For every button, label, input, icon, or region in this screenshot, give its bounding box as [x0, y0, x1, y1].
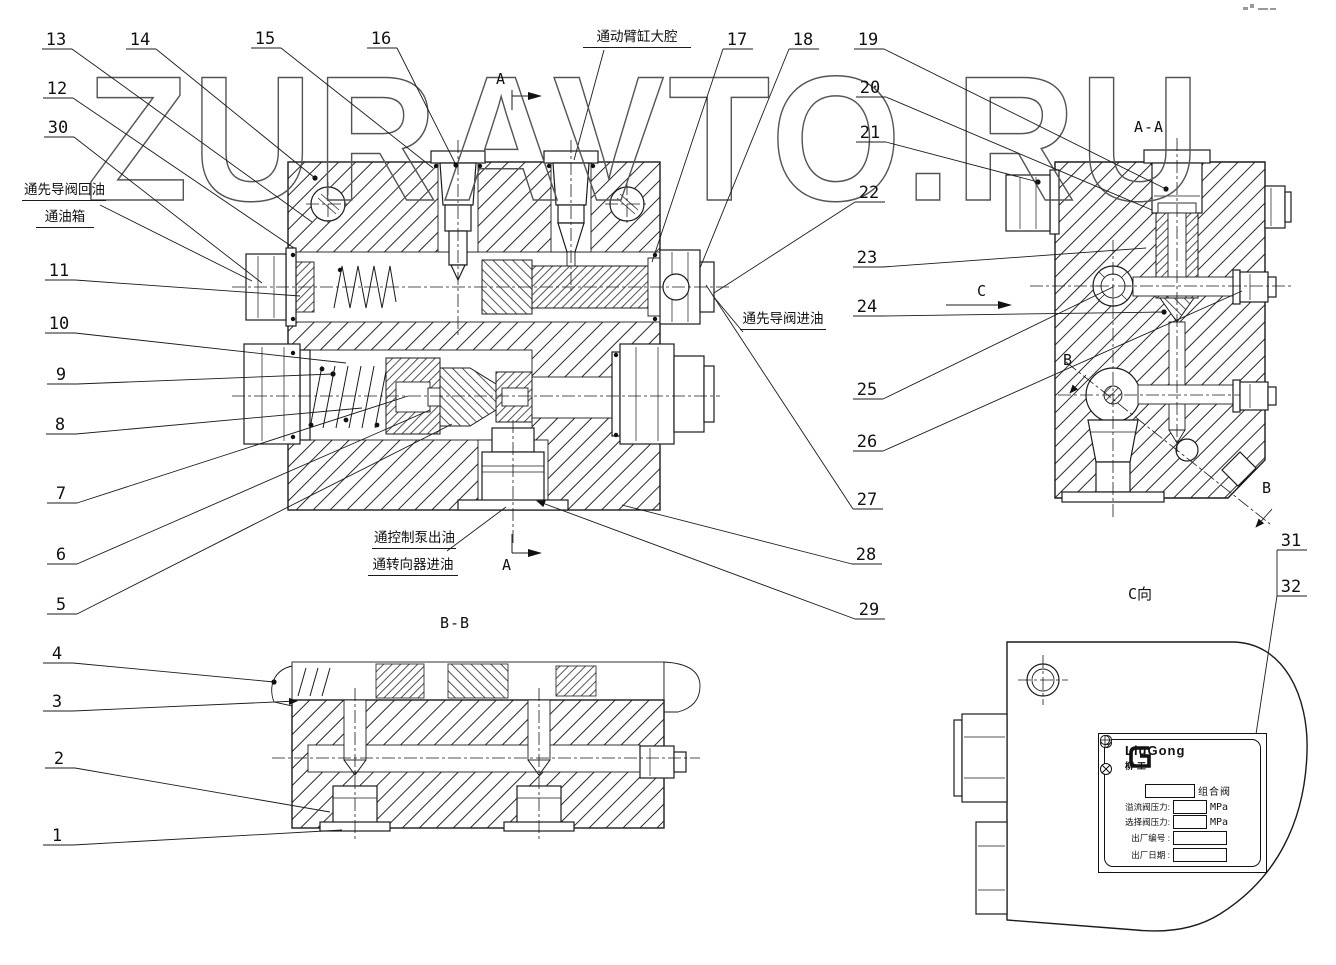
annotation-pilot-inlet: 通先导阀进油: [740, 312, 826, 330]
caption-section-aa: A-A: [1134, 118, 1164, 136]
part-number-1: 1: [52, 826, 62, 846]
caption-view-c: C向: [1128, 583, 1152, 604]
leader-line-3: [73, 701, 297, 711]
annotation-pump-out-line2: 通转向器进油: [368, 558, 458, 576]
hex-nut-lower-right: [612, 344, 714, 444]
marker-a-bottom: A: [502, 556, 511, 574]
c-view-left-plug-lower: [976, 822, 1007, 914]
liugong-logo-icon: [1125, 743, 1153, 771]
part-number-8: 8: [55, 415, 65, 435]
part-number-12: 12: [47, 79, 67, 99]
field-label: 出厂编号 :: [1117, 832, 1170, 844]
part-number-27: 27: [857, 490, 877, 510]
part-number-10: 10: [49, 314, 69, 334]
part-number-5: 5: [56, 595, 66, 615]
part-number-16: 16: [371, 29, 391, 49]
part-number-21: 21: [860, 123, 880, 143]
annotation-pilot-return-line2: 通油箱: [36, 210, 94, 228]
circle-cross-mark: [1099, 762, 1113, 776]
field-label: 出厂日期 :: [1117, 849, 1170, 861]
marker-a-top: A: [496, 70, 505, 88]
nameplate-relief-pressure-row: 溢流阀压力: MPa: [1117, 800, 1228, 814]
leader-line-1: [73, 830, 342, 845]
blank-field: [1173, 815, 1207, 829]
part-number-3: 3: [52, 692, 62, 712]
field-label: 选择阀压力:: [1117, 816, 1170, 828]
blank-field: [1173, 831, 1227, 845]
nameplate-logo-row: LiuGong 柳工: [1125, 743, 1185, 772]
part-number-13: 13: [46, 30, 66, 50]
part-number-22: 22: [859, 183, 879, 203]
part-number-29: 29: [859, 600, 879, 620]
side-plug-right: [640, 746, 686, 778]
blank-field: [1173, 848, 1227, 862]
nameplate-serial-row: 出厂编号 :: [1117, 831, 1227, 845]
caption-section-bb: B-B: [440, 614, 470, 632]
part-number-20: 20: [860, 78, 880, 98]
unit-label: MPa: [1210, 817, 1228, 828]
part-number-31: 31: [1281, 531, 1301, 551]
part-number-14: 14: [130, 30, 150, 50]
marker-b-lower: B: [1262, 479, 1271, 497]
aa-right-top-bolt: [1265, 186, 1291, 228]
bottom-section-view: [272, 662, 700, 842]
part-number-2: 2: [54, 749, 64, 769]
part-number-26: 26: [857, 432, 877, 452]
part-number-6: 6: [56, 545, 66, 565]
aa-right-plug-mid: [1233, 270, 1276, 304]
part-number-9: 9: [56, 365, 66, 385]
part-number-7: 7: [56, 484, 66, 504]
part-number-28: 28: [856, 545, 876, 565]
part-number-30: 30: [48, 118, 68, 138]
leader-line-29: [537, 501, 855, 619]
unit-label: MPa: [1210, 802, 1228, 813]
blank-field: [1145, 784, 1195, 798]
leader-line-5: [77, 424, 452, 614]
nameplate-model-row: 组合阀: [1145, 783, 1231, 798]
marker-c: C: [977, 282, 986, 300]
part-number-4: 4: [52, 644, 62, 664]
annotation-pump-out-line1: 通控制泵出油: [372, 531, 456, 549]
part-number-18: 18: [793, 30, 813, 50]
field-label: 溢流阀压力:: [1117, 801, 1170, 813]
part-number-19: 19: [858, 30, 878, 50]
corner-artifact: [1243, 4, 1276, 10]
annotation-boom-cylinder: 通动臂缸大腔: [583, 30, 691, 48]
nameplate-selector-pressure-row: 选择阀压力: MPa: [1117, 815, 1228, 829]
model-suffix: 组合阀: [1198, 783, 1231, 798]
c-view-left-plug-upper: [954, 714, 1007, 802]
marker-b-upper: B: [1063, 351, 1072, 369]
nameplate: LiuGong 柳工 组合阀 溢流阀压力: MPa 选择阀压力: MPa 出厂编…: [1098, 733, 1267, 873]
part-number-32: 32: [1281, 577, 1301, 597]
engineering-drawing-canvas: ZURAVTO.RU 12345678910111213141516171819…: [0, 0, 1336, 965]
end-cap-lower-left: [244, 344, 310, 444]
leader-line-28: [622, 505, 852, 564]
part-number-11: 11: [49, 261, 69, 281]
watermark-text: ZURAVTO.RU: [86, 39, 1204, 238]
part-number-17: 17: [727, 30, 747, 50]
part-number-23: 23: [857, 248, 877, 268]
nameplate-date-row: 出厂日期 :: [1117, 848, 1227, 862]
part-number-25: 25: [857, 380, 877, 400]
screw-icon: [1099, 734, 1111, 746]
leader-line-4: [73, 663, 274, 682]
annotation-pilot-return-line1: 通先导阀回油: [22, 183, 106, 201]
blank-field: [1173, 800, 1207, 814]
part-number-24: 24: [857, 297, 877, 317]
part-number-15: 15: [255, 29, 275, 49]
aa-right-plug-lower: [1233, 380, 1276, 412]
